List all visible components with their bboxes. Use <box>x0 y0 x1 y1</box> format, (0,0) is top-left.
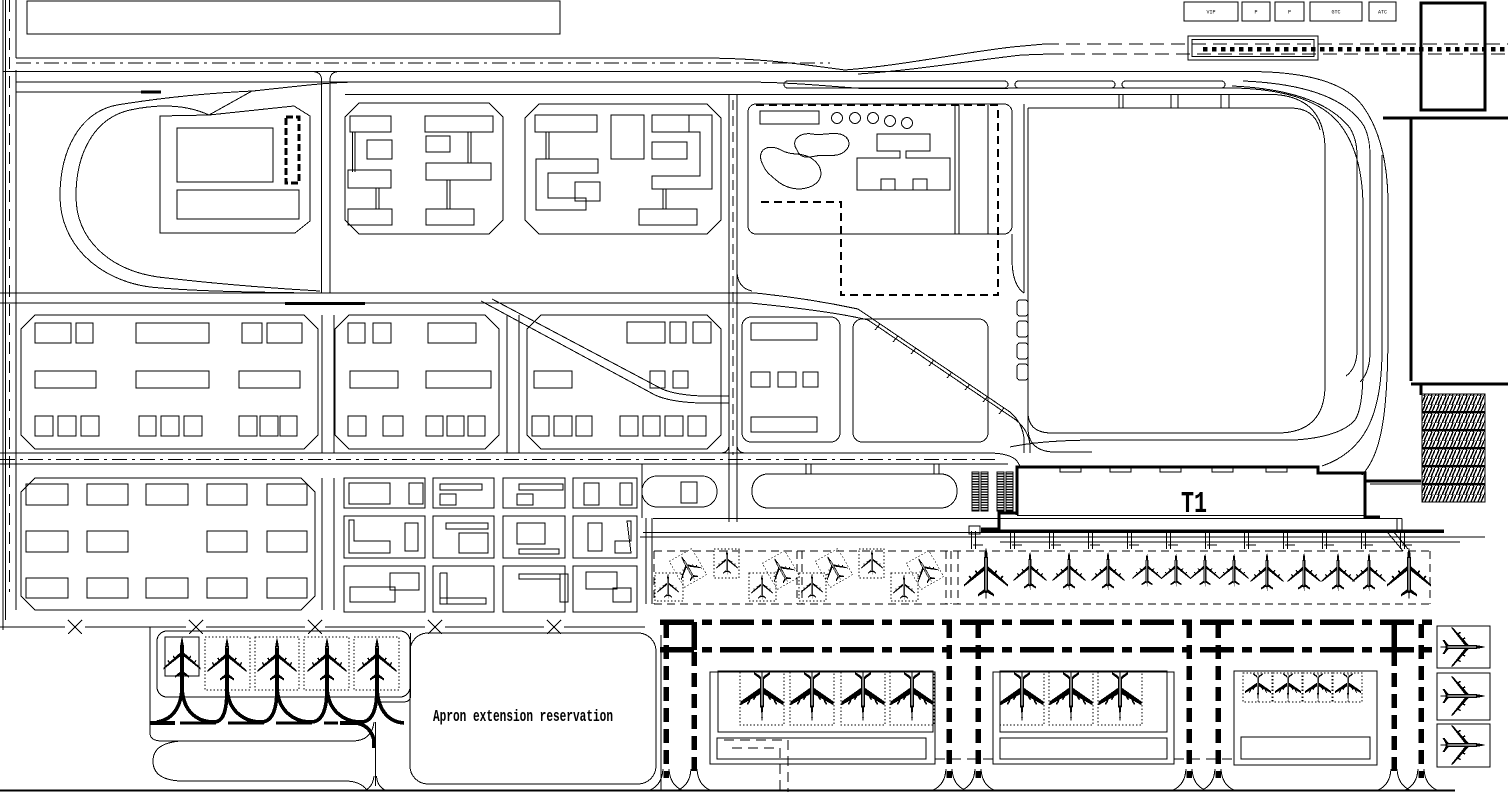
svg-text:Apron extension reservation: Apron extension reservation <box>433 707 613 726</box>
svg-text:VIP: VIP <box>1206 10 1215 16</box>
svg-text:ATC: ATC <box>1378 10 1387 16</box>
svg-text:T1: T1 <box>1181 487 1207 522</box>
svg-text:P: P <box>1288 10 1291 16</box>
svg-text:GTC: GTC <box>1331 10 1340 16</box>
svg-text:P: P <box>1254 10 1257 16</box>
